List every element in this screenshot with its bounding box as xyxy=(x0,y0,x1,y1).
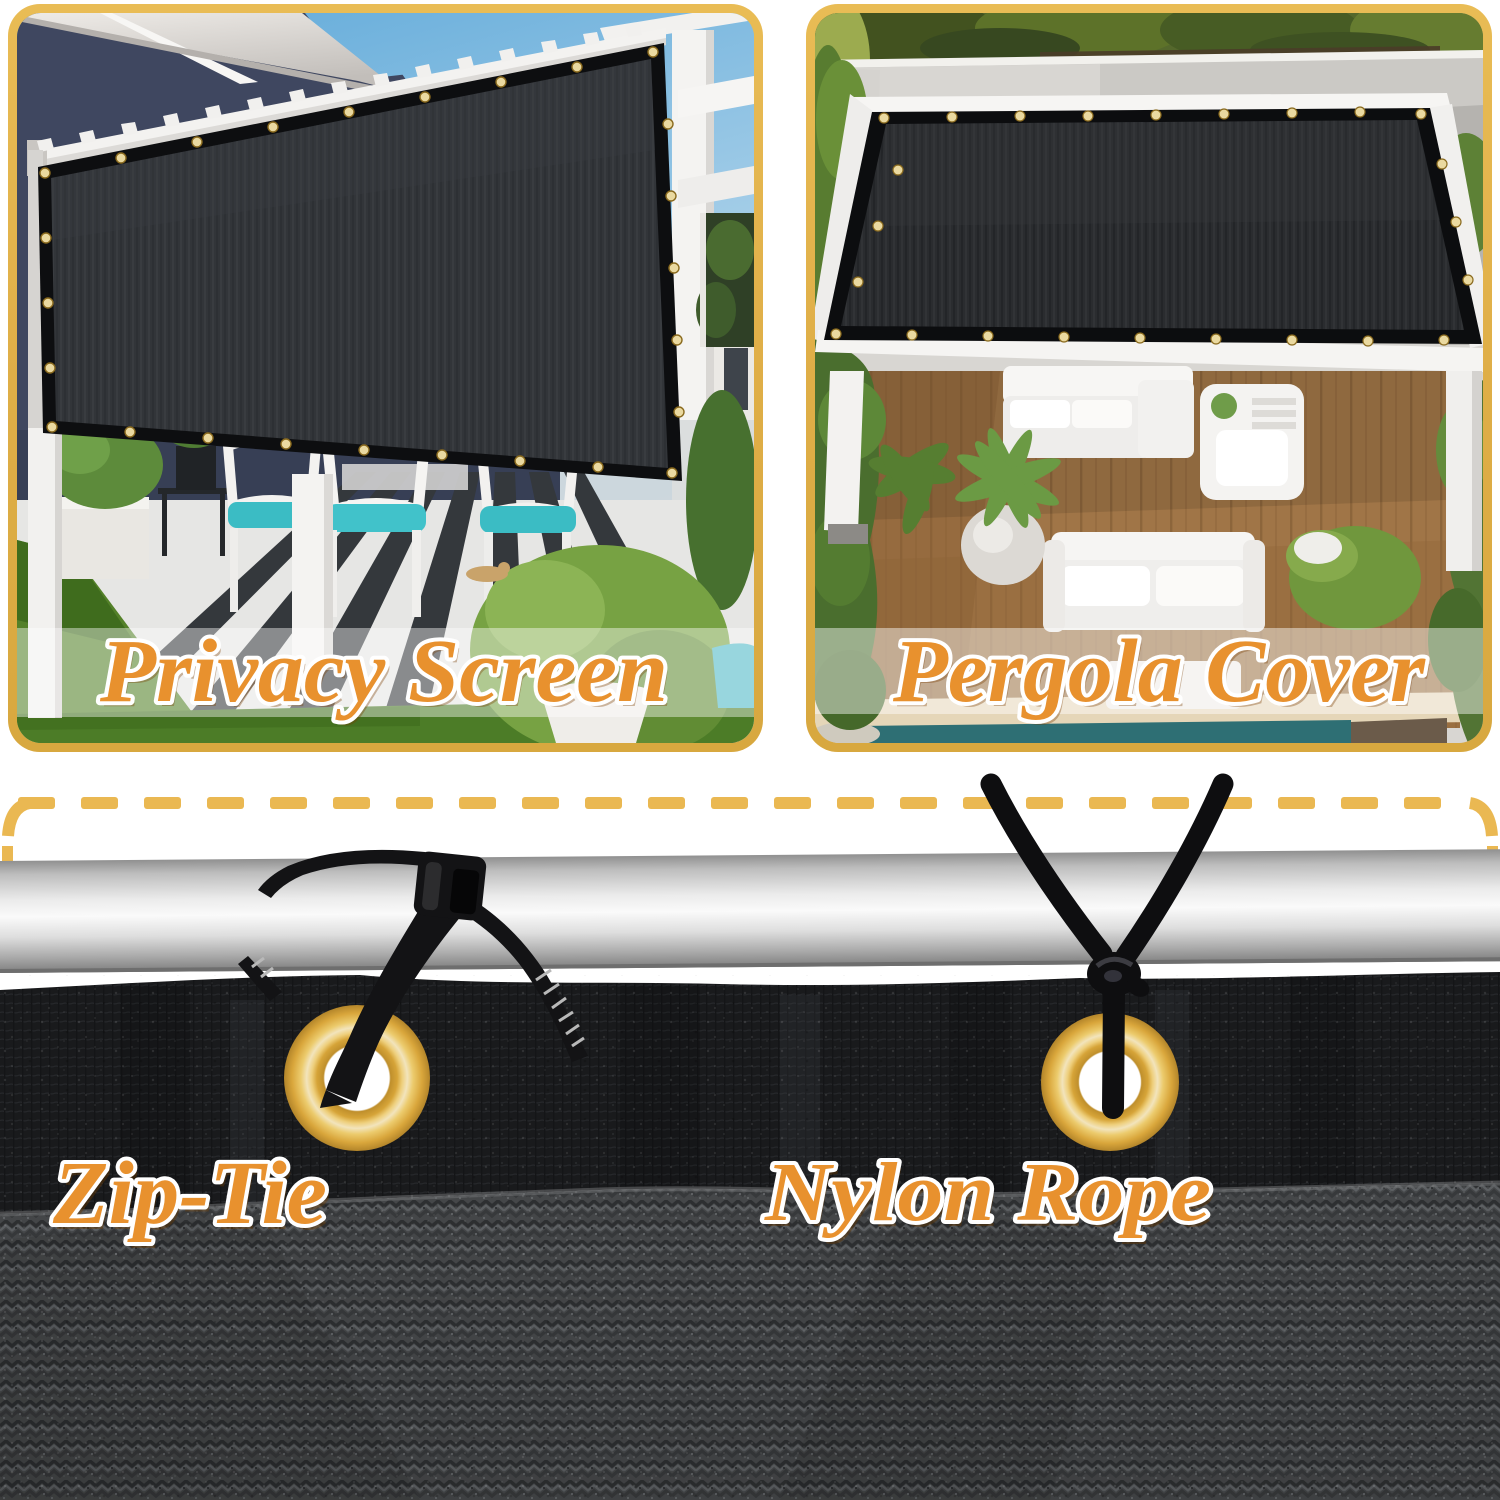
svg-text:Zip-Tie: Zip-Tie xyxy=(52,1144,327,1243)
svg-text:Privacy Screen: Privacy Screen xyxy=(99,622,668,721)
svg-text:Nylon Rope: Nylon Rope xyxy=(764,1146,1211,1239)
svg-text:Pergola Cover: Pergola Cover xyxy=(892,622,1426,721)
